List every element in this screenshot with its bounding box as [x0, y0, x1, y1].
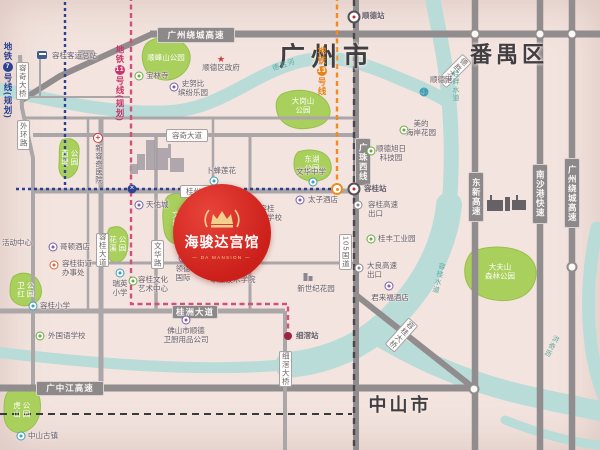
poi-dot-icon — [36, 332, 45, 341]
road-label: 桂洲大道 — [172, 305, 218, 319]
park-label: 顺峰山公园 — [147, 54, 185, 63]
station-label: 细滘站 — [296, 332, 319, 341]
building-sketch-icon — [512, 200, 526, 210]
project-title: 海骏达宫馆 — [185, 232, 260, 252]
road-label: 细滘大桥 — [279, 351, 292, 387]
poi-label: 桂丰工业园 — [378, 235, 416, 244]
park-label: 大夫山森林公园 — [485, 264, 515, 281]
building-sketch-icon — [146, 140, 155, 170]
project-subtitle: — DA MANSION — — [193, 255, 252, 260]
metro-number-icon: 11 — [115, 65, 125, 75]
bus-station-icon — [37, 51, 47, 59]
poi-label: 容桂客运总站 — [52, 52, 97, 61]
region-label: 中山市 — [369, 391, 432, 417]
poi-label: 史努比缤纷乐园 — [178, 80, 208, 97]
region-label: 广州市 — [279, 37, 375, 74]
building-sketch-icon — [156, 148, 168, 170]
station-marker-icon — [284, 332, 292, 340]
poi-label: 顺德区政府 — [202, 64, 240, 73]
road-label: 105国道 — [339, 234, 352, 270]
road-label: 容奇大道 — [166, 129, 208, 142]
map-canvas: 广州市番禺区中山市广州绕城高速广中江高速桂洲大道广珠西线东新高速南沙港快速广州绕… — [0, 0, 600, 450]
poi-dot-icon — [50, 261, 59, 270]
building-sketch-icon — [487, 200, 503, 211]
poi-dot-icon — [29, 302, 38, 311]
poi-label: 卜蜂莲花 — [206, 167, 236, 176]
road-label: 文华路 — [151, 240, 164, 269]
road-label: 广珠西线 — [355, 138, 371, 186]
metro-line-label: 地铁11号线(规划) — [114, 45, 125, 122]
poi-label: 瑞英小学 — [113, 280, 128, 297]
metro-line-label: 地铁13号线 — [316, 46, 327, 96]
station-marker-icon — [331, 183, 343, 195]
river-path — [589, 228, 600, 400]
road-label: 容奇大桥 — [16, 62, 29, 100]
poi-label: 天佑城 — [146, 201, 169, 210]
poi-dot-icon — [182, 316, 191, 325]
project-badge: 海骏达宫馆 — DA MANSION — — [173, 184, 271, 282]
poi-dot-icon — [367, 235, 376, 244]
road-label: 广州绕城高速 — [564, 158, 580, 228]
metro-line-label: 地铁7号线(规划) — [2, 42, 13, 119]
road-label: 广中江高速 — [36, 381, 104, 396]
road-label: 广州绕城高速 — [157, 27, 235, 43]
poi-dot-icon — [309, 178, 318, 187]
road-label: 南沙港快速 — [532, 164, 548, 224]
park-label: 卫红公园 — [16, 282, 34, 299]
poi-label: 文华中学 — [296, 168, 326, 177]
poi-label: 新世纪花园 — [297, 285, 335, 294]
road-label: 东新高速 — [468, 172, 484, 222]
poi-dot-icon — [385, 282, 394, 291]
road-junction-icon — [470, 385, 479, 394]
poi-dot-icon — [116, 269, 125, 278]
poi-label: 活动中心 — [2, 239, 32, 248]
station-marker-icon: ✕ — [128, 185, 137, 194]
poi-label: 君来福酒店 — [371, 294, 409, 303]
poi-label: 中山古镇 — [28, 432, 58, 441]
poi-dot-icon — [135, 72, 144, 81]
poi-label: 美的海岸花园 — [406, 120, 436, 137]
building-sketch-icon — [130, 164, 138, 174]
poi-label: 容桂小学 — [40, 302, 70, 311]
poi-label: 大良高速出口 — [367, 262, 397, 279]
station-label: 容桂站 — [364, 185, 387, 194]
metro-number-icon: 13 — [317, 66, 327, 76]
river-label: 桂畔水道 — [450, 70, 460, 102]
poi-label: 哥顿酒店 — [60, 243, 90, 252]
road-junction-icon — [568, 30, 577, 39]
park-label: 西堤公园 — [60, 150, 78, 167]
poi-label: 新容奇医院 — [94, 144, 103, 184]
highway-exit-icon — [354, 201, 363, 210]
poi-label: 佛山市顺德卫厨用品公司 — [164, 327, 209, 344]
station-label: 顺德站 — [362, 12, 385, 21]
building-sketch-icon — [516, 195, 518, 200]
poi-label: 宝林寺 — [146, 72, 169, 81]
poi-label: 外国语学校 — [48, 332, 86, 341]
building-sketch-icon — [168, 144, 171, 158]
building-sketch-icon — [170, 158, 184, 172]
poi-dot-icon — [129, 277, 138, 286]
river-path — [0, 352, 292, 368]
poi-dot-icon — [135, 201, 144, 210]
hospital-icon: + — [93, 133, 103, 143]
building-sketch-icon — [137, 154, 145, 170]
poi-label: 容桂高速出口 — [368, 201, 398, 218]
road-path — [20, 55, 33, 388]
building-sketch-icon — [490, 195, 492, 200]
road-junction-icon — [568, 263, 577, 272]
poi-label: 容桂文化艺术中心 — [138, 276, 168, 293]
region-label: 番禺区 — [470, 37, 548, 69]
poi-dot-icon — [49, 243, 58, 252]
park-label: 花溪公园 — [108, 236, 126, 253]
poi-dot-icon — [296, 196, 305, 205]
poi-label: 顺德旭日科技园 — [376, 145, 406, 162]
metro-number-icon: 7 — [3, 62, 13, 72]
station-marker-icon — [348, 11, 361, 24]
road-label: 外环路 — [17, 120, 30, 150]
poi-label: 太子酒店 — [308, 196, 338, 205]
poi-label: 容桂街道办事处 — [62, 260, 92, 277]
crown-emblem-icon — [203, 206, 241, 230]
station-marker-icon — [348, 183, 361, 196]
highway-exit-icon — [355, 264, 364, 273]
port-anchor-icon: ⚓ — [420, 88, 429, 97]
park-label: 大岗山公园 — [292, 98, 315, 115]
building-sketch-icon — [505, 197, 510, 211]
park-label: 虎山公园 — [12, 402, 30, 419]
road-path — [22, 34, 152, 100]
river-path — [505, 420, 600, 446]
poi-dot-icon — [367, 147, 376, 156]
poi-dot-icon — [17, 432, 26, 441]
